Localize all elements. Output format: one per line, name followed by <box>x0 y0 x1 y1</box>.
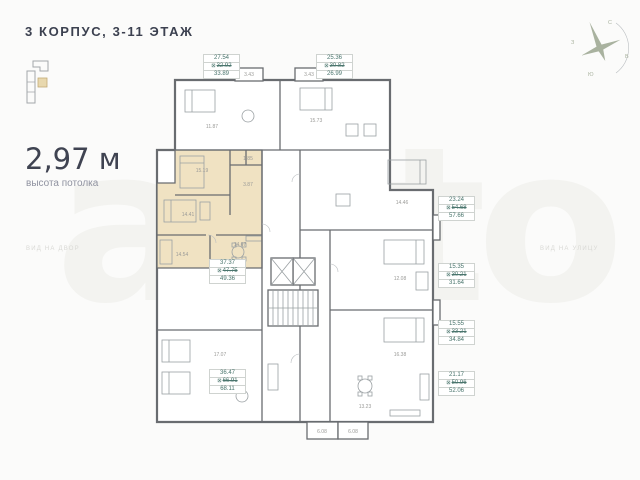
key-icon: ⊠ <box>446 381 450 386</box>
view-courtyard-label: ВИД НА ДВОР <box>26 246 80 252</box>
key-icon: ⊠ <box>217 269 221 274</box>
key-icon: ⊠ <box>446 273 450 278</box>
area-label-top-right: 25.36 ⊠30.82 26.99 <box>316 55 353 79</box>
key-icon: ⊠ <box>211 64 215 69</box>
room-area: 12.08 <box>394 276 407 282</box>
compass-w: З <box>571 40 575 46</box>
floor-plan: 15.19 14.41 14.54 14.67 3.87 1.85 11.87 … <box>150 64 442 448</box>
total-area-with-balcony: 52.06 <box>438 387 475 396</box>
key-icon: ⊠ <box>446 330 450 335</box>
total-area-with-balcony: 26.99 <box>316 70 353 79</box>
compass-s: Ю <box>588 72 594 78</box>
room-area: 15.73 <box>310 118 323 124</box>
room-area: 14.67 <box>234 242 247 248</box>
area-label-right-4: 21.17 ⊠50.96 52.06 <box>438 372 475 396</box>
total-area-with-balcony: 34.84 <box>438 336 475 345</box>
total-area-with-balcony: 31.64 <box>438 279 475 288</box>
room-area: 17.07 <box>214 352 227 358</box>
total-area-with-balcony: 33.89 <box>203 70 240 79</box>
room-area: 16.38 <box>394 352 407 358</box>
key-icon: ⊠ <box>324 64 328 69</box>
ceiling-height-label: высота потолка <box>26 178 98 189</box>
compass-e: В <box>625 54 629 60</box>
area-label-selected-apartment: 37.37 ⊠47.75 49.36 <box>209 260 246 284</box>
view-street-label: ВИД НА УЛИЦУ <box>540 246 599 252</box>
key-icon: ⊠ <box>446 206 450 211</box>
room-area: 14.41 <box>182 212 195 218</box>
key-icon: ⊠ <box>217 379 221 384</box>
area-label-right-1: 23.24 ⊠54.68 57.66 <box>438 197 475 221</box>
ceiling-height-value: 2,97 м <box>25 142 121 176</box>
room-area: 13.23 <box>359 404 372 410</box>
area-label-bottom-left: 36.47 ⊠66.91 68.11 <box>209 370 246 394</box>
room-area: 3.87 <box>243 182 253 188</box>
area-label-right-2: 15.35 ⊠30.21 31.64 <box>438 264 475 288</box>
room-area: 14.46 <box>396 200 409 206</box>
balcony-area: 6.08 <box>348 429 358 435</box>
room-area: 15.19 <box>196 168 209 174</box>
balcony-area: 3.43 <box>244 72 254 78</box>
room-area: 11.87 <box>206 124 218 130</box>
area-label-right-3: 15.55 ⊠33.21 34.84 <box>438 321 475 345</box>
building-position-icon <box>24 58 58 106</box>
room-area: 1.85 <box>243 156 253 162</box>
total-area-with-balcony: 49.36 <box>209 275 246 284</box>
area-label-top-left: 27.54 ⊠32.92 33.89 <box>203 55 240 79</box>
room-area: 14.54 <box>176 252 189 258</box>
compass-n: С <box>608 20 612 26</box>
compass-icon: С В Ю З <box>566 14 634 82</box>
page-title: 3 КОРПУС, 3-11 ЭТАЖ <box>25 24 193 39</box>
balcony-area: 6.08 <box>317 429 327 435</box>
total-area-with-balcony: 68.11 <box>209 385 246 394</box>
total-area-with-balcony: 57.66 <box>438 212 475 221</box>
balcony-area: 3.43 <box>304 72 314 78</box>
